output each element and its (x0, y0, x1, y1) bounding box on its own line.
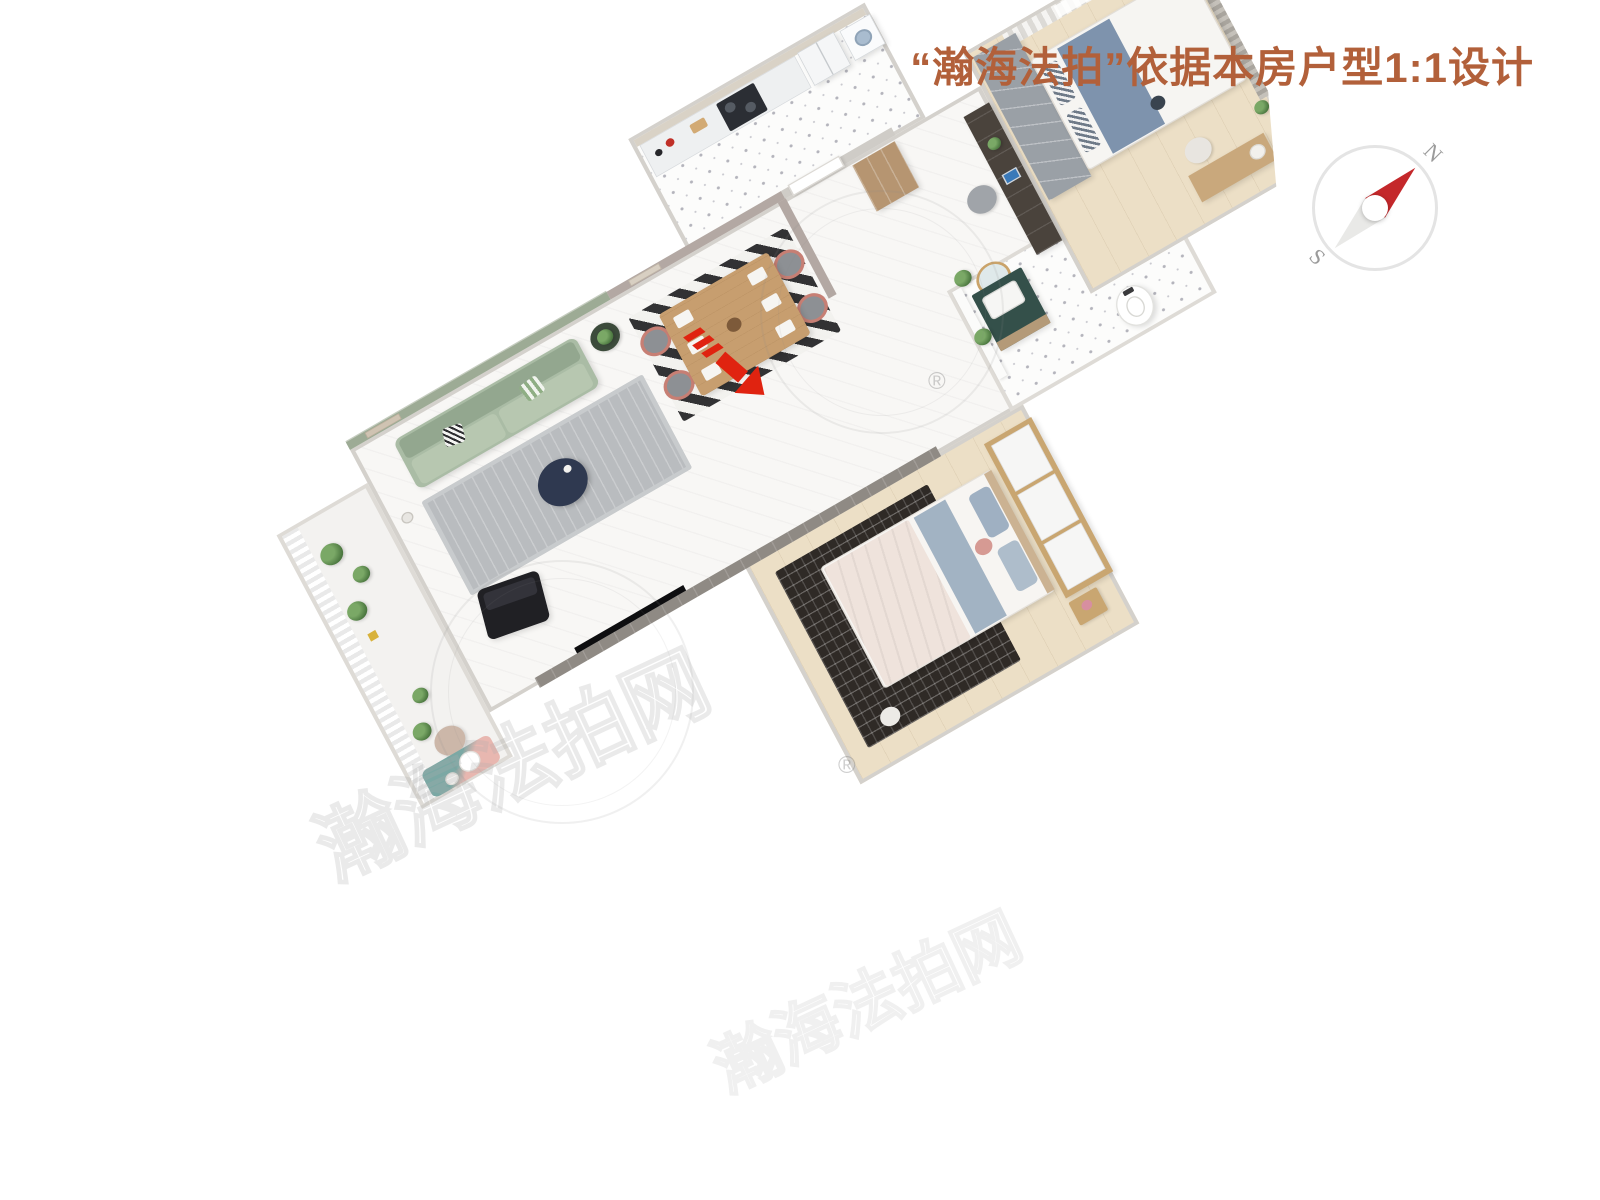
south-label: S (1304, 243, 1331, 270)
kitchen-upper-cabinets (634, 8, 867, 147)
registered-mark: ® (838, 752, 856, 780)
page-title: “瀚海法拍”依据本房户型1:1设计 (910, 34, 1534, 95)
potted-plant (1252, 97, 1272, 117)
potted-plant (985, 135, 1003, 153)
compass-hub (1362, 195, 1388, 221)
watermark-text: 瀚海法拍网 (695, 885, 1035, 1111)
throw-pillow (972, 535, 995, 558)
potted-plant (350, 563, 373, 586)
plant-pot-yellow (367, 630, 379, 642)
table-centerpiece (724, 315, 744, 335)
potted-plant (344, 598, 371, 625)
potted-plant (317, 539, 347, 569)
registered-mark: ® (928, 368, 946, 396)
watermark-ring (760, 190, 1004, 434)
floor-plan-page: 瀚海法拍网 瀚海法拍网 ® ® N S “瀚海法拍”依据本房户型1:1设计 (0, 0, 1600, 1200)
toilet (1109, 278, 1161, 333)
compass: N S (1307, 140, 1443, 276)
potted-plant (410, 685, 432, 707)
laptop (1002, 167, 1022, 185)
arrow-shaft (716, 351, 748, 382)
